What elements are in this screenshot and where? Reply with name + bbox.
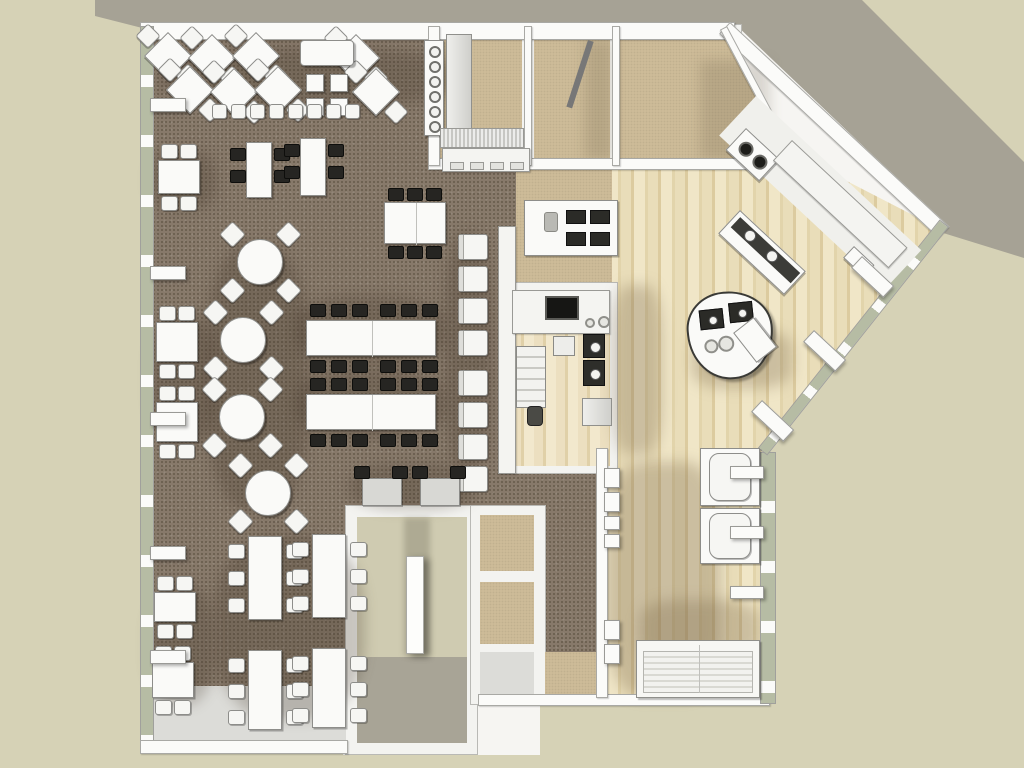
long-table bbox=[312, 534, 346, 618]
prep-station bbox=[524, 200, 618, 256]
chair bbox=[350, 596, 367, 611]
chair bbox=[180, 196, 197, 211]
wall-shelf bbox=[730, 586, 764, 599]
plate bbox=[429, 106, 441, 118]
floor-shadow bbox=[612, 285, 662, 455]
stool-row bbox=[288, 104, 303, 119]
table bbox=[246, 142, 272, 198]
plate bbox=[429, 61, 441, 73]
chair bbox=[380, 378, 396, 391]
table-seam bbox=[372, 321, 373, 357]
wc-cell-3 bbox=[480, 652, 534, 696]
round-table bbox=[219, 394, 265, 440]
stool-back bbox=[459, 299, 464, 323]
chair bbox=[284, 166, 300, 179]
window-sill bbox=[150, 98, 186, 112]
chair bbox=[178, 444, 195, 459]
grayblob bbox=[544, 212, 558, 232]
slatted-bench bbox=[636, 640, 760, 698]
chair bbox=[176, 576, 193, 591]
darkrack bbox=[590, 232, 610, 246]
chair bbox=[228, 571, 245, 586]
chair bbox=[174, 700, 191, 715]
wall-box bbox=[604, 620, 620, 640]
round-table bbox=[237, 239, 283, 285]
plate bbox=[429, 46, 441, 58]
sink-bowl bbox=[764, 248, 781, 265]
wall-shelf bbox=[730, 466, 764, 479]
cafe-table bbox=[330, 74, 348, 92]
chair bbox=[178, 364, 195, 379]
tall-cabinet bbox=[446, 34, 472, 130]
long-table bbox=[248, 650, 282, 730]
wall-bottom-left bbox=[140, 740, 348, 754]
chair bbox=[328, 144, 344, 157]
wall-box bbox=[604, 644, 620, 664]
chair bbox=[412, 466, 428, 479]
chair bbox=[331, 378, 347, 391]
chair bbox=[284, 144, 300, 157]
chair bbox=[310, 360, 326, 373]
burner bbox=[708, 316, 718, 326]
window-sill bbox=[150, 650, 186, 664]
wc-cell-1 bbox=[480, 515, 534, 571]
wall-divider-2 bbox=[612, 26, 620, 166]
bar-stool bbox=[458, 266, 488, 292]
chair bbox=[422, 304, 438, 317]
chair bbox=[292, 596, 309, 611]
chair bbox=[354, 466, 370, 479]
chair bbox=[310, 434, 326, 447]
pot bbox=[598, 316, 610, 328]
chair bbox=[388, 246, 404, 259]
stool-back bbox=[459, 235, 464, 259]
stool-row bbox=[250, 104, 265, 119]
burner bbox=[749, 152, 770, 173]
chair bbox=[331, 304, 347, 317]
chair bbox=[228, 544, 245, 559]
stool-row bbox=[212, 104, 227, 119]
chair bbox=[422, 360, 438, 373]
corner-sofa bbox=[300, 40, 354, 66]
window-table bbox=[156, 322, 198, 362]
stool-row bbox=[231, 104, 246, 119]
chair bbox=[228, 658, 245, 673]
stool-row bbox=[269, 104, 284, 119]
floor-shadow bbox=[585, 40, 613, 160]
vestibule-partition bbox=[406, 556, 424, 654]
stool-back bbox=[459, 267, 464, 291]
round-table bbox=[245, 470, 291, 516]
window-table bbox=[158, 160, 200, 194]
chair bbox=[470, 162, 484, 170]
window-table bbox=[154, 592, 196, 622]
chair bbox=[159, 444, 176, 459]
chair bbox=[380, 360, 396, 373]
chair bbox=[407, 188, 423, 201]
chair bbox=[228, 684, 245, 699]
darkrack bbox=[566, 232, 586, 246]
chair bbox=[176, 624, 193, 639]
round-table bbox=[220, 317, 266, 363]
chair bbox=[230, 170, 246, 183]
pot bbox=[585, 318, 595, 328]
dining-row-table bbox=[384, 202, 446, 244]
stool-row bbox=[326, 104, 341, 119]
window-sill bbox=[150, 412, 186, 426]
dining-row-table bbox=[306, 320, 436, 356]
long-table bbox=[312, 648, 346, 728]
vestibule-floor-shaded bbox=[357, 657, 467, 743]
chair bbox=[352, 378, 368, 391]
waste-bin bbox=[527, 406, 543, 426]
chair bbox=[422, 434, 438, 447]
chair bbox=[422, 378, 438, 391]
chair bbox=[159, 364, 176, 379]
chair bbox=[407, 246, 423, 259]
chair bbox=[292, 656, 309, 671]
chair bbox=[510, 162, 524, 170]
table bbox=[300, 138, 326, 196]
stool-back bbox=[459, 435, 464, 459]
wall-left-window bbox=[140, 26, 154, 748]
chair bbox=[401, 378, 417, 391]
chair bbox=[350, 542, 367, 557]
chair bbox=[388, 188, 404, 201]
chair bbox=[350, 656, 367, 671]
chair bbox=[490, 162, 504, 170]
floorplan-canvas[interactable] bbox=[0, 0, 1024, 768]
wall-divider-1 bbox=[524, 26, 532, 166]
chair bbox=[331, 434, 347, 447]
chair bbox=[180, 144, 197, 159]
chair bbox=[155, 700, 172, 715]
corridor-floor bbox=[545, 652, 600, 698]
bar-stool bbox=[458, 434, 488, 460]
bar-stool bbox=[458, 402, 488, 428]
dial bbox=[590, 369, 601, 380]
sink-bowl bbox=[742, 227, 759, 244]
window-table bbox=[152, 662, 194, 698]
wall-right-lower-window bbox=[760, 452, 776, 704]
table-seam bbox=[416, 203, 417, 245]
stool-back bbox=[459, 371, 464, 395]
chair bbox=[352, 434, 368, 447]
wall-shelf bbox=[730, 526, 764, 539]
bench-seam bbox=[699, 645, 700, 693]
chair bbox=[401, 360, 417, 373]
burner bbox=[738, 308, 748, 318]
chair bbox=[310, 304, 326, 317]
chair bbox=[352, 304, 368, 317]
cafe-table bbox=[306, 74, 324, 92]
chair bbox=[292, 682, 309, 697]
chair bbox=[161, 144, 178, 159]
chair bbox=[159, 306, 176, 321]
chair bbox=[292, 569, 309, 584]
chair bbox=[157, 576, 174, 591]
chair bbox=[328, 166, 344, 179]
pot bbox=[717, 335, 735, 353]
chair bbox=[401, 304, 417, 317]
darkrack bbox=[590, 210, 610, 224]
chair bbox=[331, 360, 347, 373]
chair bbox=[178, 306, 195, 321]
dining-row-table bbox=[306, 394, 436, 430]
bar-stool bbox=[458, 330, 488, 356]
bar-stool bbox=[458, 298, 488, 324]
stool-row bbox=[307, 104, 322, 119]
wc-cell-2 bbox=[480, 582, 534, 644]
stool-back bbox=[459, 403, 464, 427]
shelving-unit bbox=[516, 346, 546, 408]
servery-counter bbox=[440, 128, 524, 148]
plate bbox=[429, 76, 441, 88]
chair bbox=[310, 378, 326, 391]
chair bbox=[352, 360, 368, 373]
bench-slats bbox=[643, 651, 753, 693]
bar-stool bbox=[458, 234, 488, 260]
wall-box bbox=[604, 534, 620, 548]
grill bbox=[699, 308, 725, 330]
chair bbox=[426, 188, 442, 201]
plate-rack bbox=[424, 40, 444, 136]
chair bbox=[401, 434, 417, 447]
chair bbox=[292, 708, 309, 723]
gray-table bbox=[362, 478, 402, 506]
chair bbox=[350, 569, 367, 584]
chair bbox=[157, 624, 174, 639]
sink bbox=[553, 336, 575, 356]
chair bbox=[230, 148, 246, 161]
cabinet bbox=[582, 398, 612, 426]
service-hatch bbox=[545, 296, 579, 320]
bar-counter bbox=[498, 226, 516, 474]
chair bbox=[228, 598, 245, 613]
appliance bbox=[583, 360, 605, 386]
long-table bbox=[248, 536, 282, 620]
pot bbox=[704, 339, 719, 354]
chair bbox=[380, 304, 396, 317]
chair bbox=[159, 386, 176, 401]
chair bbox=[350, 708, 367, 723]
dial bbox=[590, 342, 601, 353]
bar-stool bbox=[458, 370, 488, 396]
plate bbox=[429, 91, 441, 103]
chair bbox=[292, 542, 309, 557]
window-sill bbox=[150, 266, 186, 280]
chair bbox=[426, 246, 442, 259]
darkrack bbox=[566, 210, 586, 224]
chair bbox=[161, 196, 178, 211]
chair bbox=[178, 386, 195, 401]
wall-box bbox=[604, 468, 620, 488]
wall-box bbox=[604, 516, 620, 530]
chair bbox=[450, 162, 464, 170]
window-sill bbox=[150, 546, 186, 560]
table-seam bbox=[372, 395, 373, 431]
chair bbox=[380, 434, 396, 447]
chair bbox=[350, 682, 367, 697]
chair bbox=[392, 466, 408, 479]
chair bbox=[228, 710, 245, 725]
stool-back bbox=[459, 331, 464, 355]
gray-table bbox=[420, 478, 460, 506]
chair bbox=[450, 466, 466, 479]
stool-row bbox=[345, 104, 360, 119]
appliance bbox=[583, 334, 605, 358]
wall-box bbox=[604, 492, 620, 512]
